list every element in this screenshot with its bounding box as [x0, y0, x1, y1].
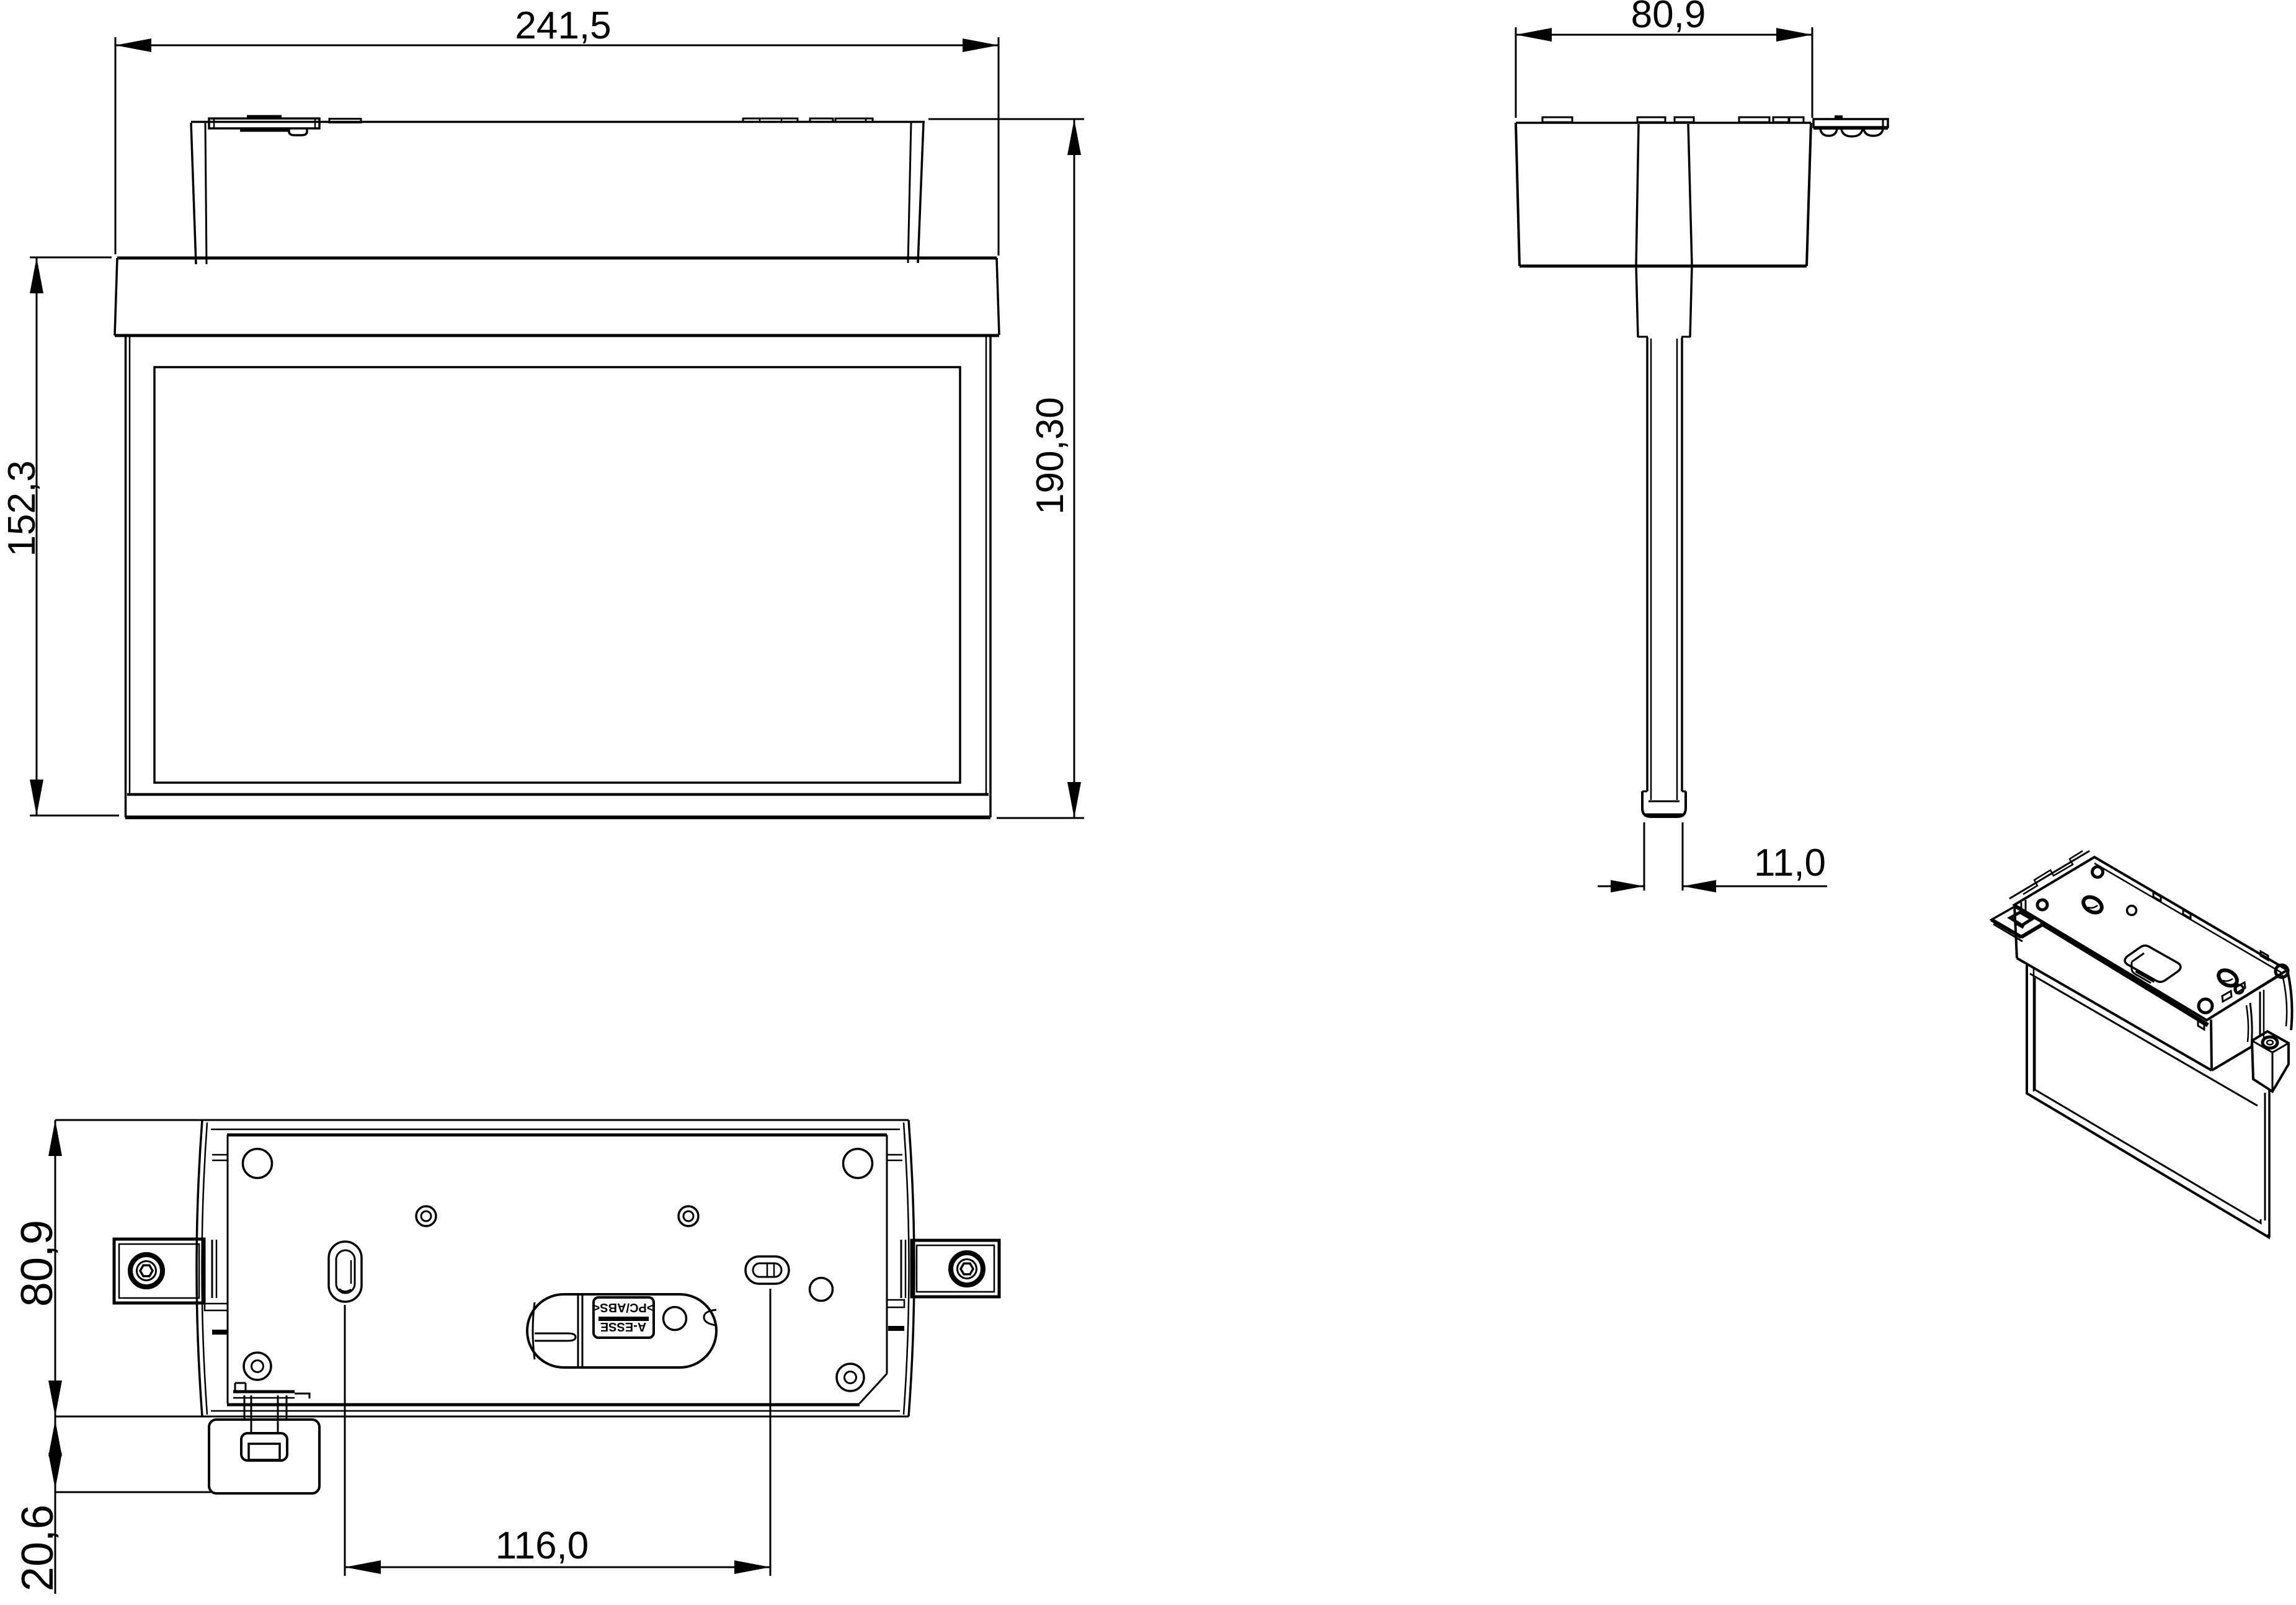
svg-text:152,3: 152,3 [1, 460, 43, 556]
svg-text:20,6: 20,6 [13, 1505, 63, 1591]
svg-text:190,30: 190,30 [1029, 397, 1072, 515]
svg-text:>PC/ABS<: >PC/ABS< [593, 1300, 654, 1314]
svg-text:80,9: 80,9 [12, 1220, 62, 1307]
svg-text:A-ESSE: A-ESSE [600, 1320, 646, 1333]
svg-text:80,9: 80,9 [1631, 0, 1706, 36]
svg-text:241,5: 241,5 [515, 4, 611, 47]
svg-text:116,0: 116,0 [496, 1524, 589, 1567]
svg-text:11,0: 11,0 [1754, 842, 1826, 884]
